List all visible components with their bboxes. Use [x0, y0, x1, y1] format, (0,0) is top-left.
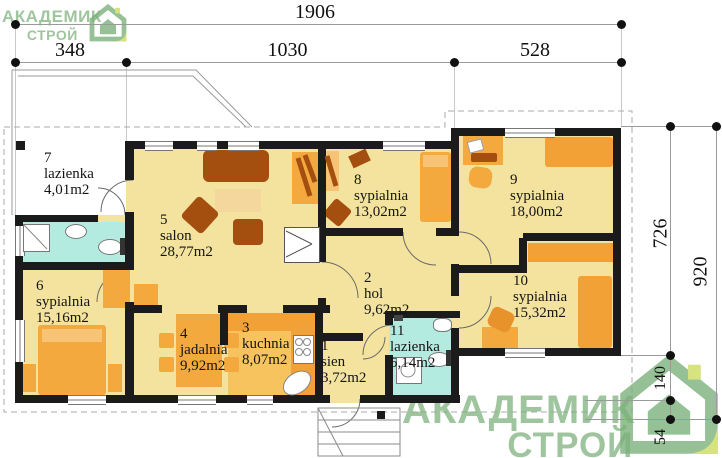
dimension-line-segments: [15, 62, 621, 63]
room-label-hol: 2 hol 9,62m2: [364, 270, 409, 318]
dimension-line-right-outer: [716, 126, 717, 419]
floor-plan: АКАДЕМИК СТРОЙ АКАДЕМИК СТРОЙ: [0, 0, 722, 458]
dimension-dot: [712, 415, 721, 424]
room-label-sien: 1 sien 3,72m2: [321, 338, 366, 386]
chimney-flue-lines: [286, 231, 312, 257]
room-label-jadalnia: 4 jadalnia 9,92m2: [180, 326, 227, 374]
dimension-segment-528: 528: [495, 39, 575, 62]
dimension-dot: [666, 122, 675, 131]
room-label-lazienka-11: 11 lazienka 5,14m2: [390, 323, 440, 371]
room-label-lazienka-7: 7 lazienka 4,01m2: [44, 150, 94, 198]
dimension-connector: [621, 355, 671, 356]
dimension-segment-1030: 1030: [240, 39, 335, 62]
dimension-right-140: 140: [652, 358, 670, 398]
shower-diagonal: [24, 225, 47, 249]
dimension-dot: [712, 122, 721, 131]
dimension-dot: [11, 20, 20, 29]
dimension-segment-348: 348: [30, 39, 110, 62]
dimension-total-width: 1906: [250, 1, 380, 24]
dimension-line-total-width: [15, 24, 621, 25]
dimension-dot: [450, 58, 459, 67]
room-label-sypialnia-8: 8 sypialnia 13,02m2: [354, 172, 408, 220]
room-label-sypialnia-6: 6 sypialnia 15,16m2: [36, 278, 90, 326]
dimension-connector: [585, 400, 671, 401]
dimension-dot: [11, 58, 20, 67]
room-label-salon: 5 salon 28,77m2: [160, 212, 213, 260]
dimension-line-right-inner: [670, 126, 671, 419]
dimension-dot: [122, 58, 131, 67]
dimension-dot: [617, 20, 626, 29]
dimension-connector: [585, 419, 716, 420]
dimension-right-920: 920: [690, 242, 713, 302]
room-label-sypialnia-10: 10 sypialnia 15,32m2: [513, 273, 567, 321]
dimension-right-726: 726: [650, 204, 673, 264]
dimension-right-54: 54: [652, 417, 670, 457]
room-label-kuchnia: 3 kuchnia 8,07m2: [242, 320, 289, 368]
dimension-dot: [617, 58, 626, 67]
wardrobe-slats: [298, 155, 336, 196]
kitchen-sink: [279, 366, 315, 400]
room-label-sypialnia-9: 9 sypialnia 18,00m2: [510, 172, 564, 220]
fixture-details-layer: [0, 0, 722, 458]
